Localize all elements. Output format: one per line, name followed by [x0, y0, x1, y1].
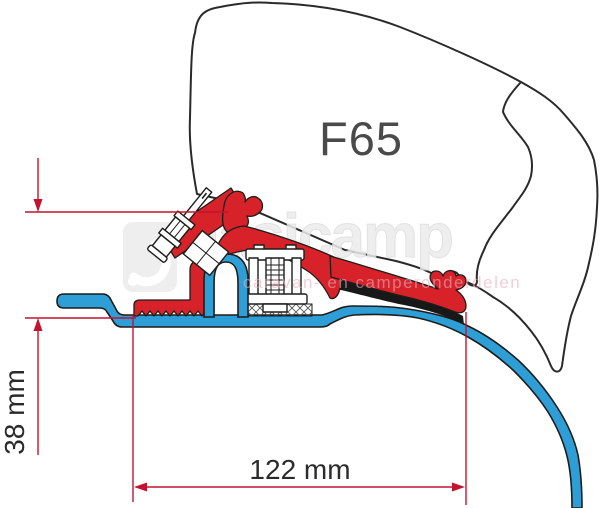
watermark-tagline: caravan- en camperonderdelen — [243, 273, 521, 292]
arrow-right — [452, 483, 465, 492]
technical-diagram: dasicamp — [0, 0, 600, 508]
arrow-up — [34, 318, 43, 331]
arrow-down — [34, 199, 43, 212]
product-label: F65 — [319, 112, 403, 165]
dimension-122mm-label: 122 mm — [249, 454, 350, 485]
diagram-canvas: dasicamp — [0, 0, 600, 508]
arrow-left — [134, 483, 147, 492]
bolt-bottom-tab — [263, 304, 287, 312]
watermark-logo-dot — [128, 276, 138, 286]
dimension-38mm-label: 38 mm — [0, 369, 30, 455]
bolt-bottom-plate — [243, 294, 307, 304]
